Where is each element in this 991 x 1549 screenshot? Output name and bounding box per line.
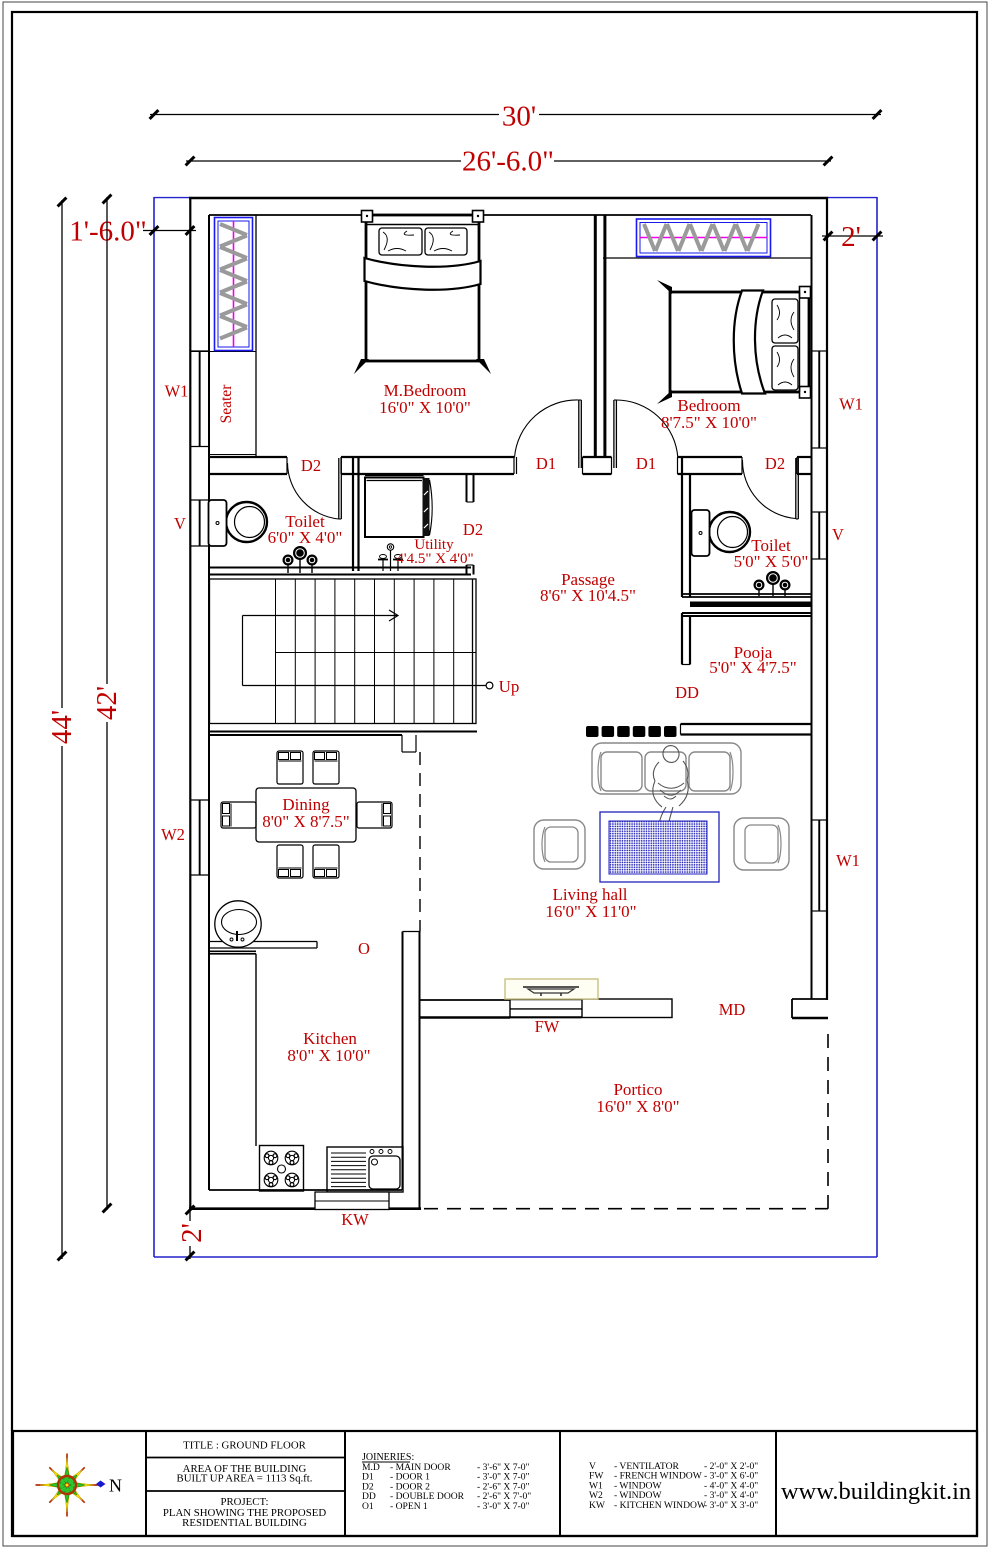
svg-text:V: V [832,525,844,544]
svg-text:O1: O1 [362,1501,374,1512]
svg-text:MD: MD [719,1000,746,1019]
svg-text:6'0" X 4'0": 6'0" X 4'0" [268,528,343,547]
svg-text:8'0" X 10'0": 8'0" X 10'0" [287,1046,370,1065]
svg-text:- 3'-0" X 3'-0": - 3'-0" X 3'-0" [704,1500,758,1511]
svg-text:42': 42' [91,686,123,720]
svg-text:W2: W2 [161,825,185,844]
svg-text:8'7.5" X 10'0": 8'7.5" X 10'0" [661,413,757,432]
svg-text:KW: KW [589,1500,606,1511]
svg-text:- OPEN 1: - OPEN 1 [390,1501,428,1512]
svg-text:16'0" X 8'0": 16'0" X 8'0" [596,1097,679,1116]
svg-text:8'0" X 8'7.5": 8'0" X 8'7.5" [262,812,350,831]
svg-text:D1: D1 [636,454,656,473]
svg-text:O: O [358,939,370,958]
svg-text:N: N [109,1476,122,1496]
svg-text:1'-6.0": 1'-6.0" [69,216,146,248]
svg-text:TITLE : GROUND FLOOR: TITLE : GROUND FLOOR [183,1440,306,1452]
svg-text:RESIDENTIAL BUILDING: RESIDENTIAL BUILDING [182,1517,307,1529]
svg-text:FW: FW [535,1017,560,1036]
svg-text:5'0" X 4'7.5": 5'0" X 4'7.5" [709,658,797,677]
svg-text:8'6" X 10'4.5": 8'6" X 10'4.5" [540,586,636,605]
svg-text:W1: W1 [839,395,863,414]
svg-text:4'4.5" X 4'0": 4'4.5" X 4'0" [396,551,473,567]
svg-text:5'0" X 5'0": 5'0" X 5'0" [734,552,809,571]
svg-text:2': 2' [841,221,861,253]
svg-text:26'-6.0": 26'-6.0" [462,146,554,178]
svg-text:W1: W1 [836,851,860,870]
svg-text:D2: D2 [301,456,321,475]
svg-text:2': 2' [176,1223,208,1243]
svg-text:44': 44' [46,710,78,744]
svg-text:16'0" X 10'0": 16'0" X 10'0" [379,398,471,417]
svg-text:- 3'-0" X 7-0": - 3'-0" X 7-0" [477,1501,530,1512]
svg-text:- KITCHEN WINDOW: - KITCHEN WINDOW [614,1500,707,1511]
svg-text:DD: DD [675,683,699,702]
svg-text:16'0" X 11'0": 16'0" X 11'0" [545,902,636,921]
svg-text:V: V [174,514,186,533]
svg-text:KW: KW [341,1210,369,1229]
svg-text:D2: D2 [463,520,483,539]
svg-text:www.buildingkit.in: www.buildingkit.in [781,1478,971,1505]
svg-text:W1: W1 [165,382,189,401]
svg-text:Seater: Seater [218,384,235,424]
svg-text:30': 30' [502,101,536,133]
svg-text:D2: D2 [765,454,785,473]
svg-text:Up: Up [499,677,520,696]
svg-text:D1: D1 [536,454,556,473]
svg-text:BUILT UP AREA = 1113 Sq.ft.: BUILT UP AREA = 1113 Sq.ft. [177,1473,313,1485]
